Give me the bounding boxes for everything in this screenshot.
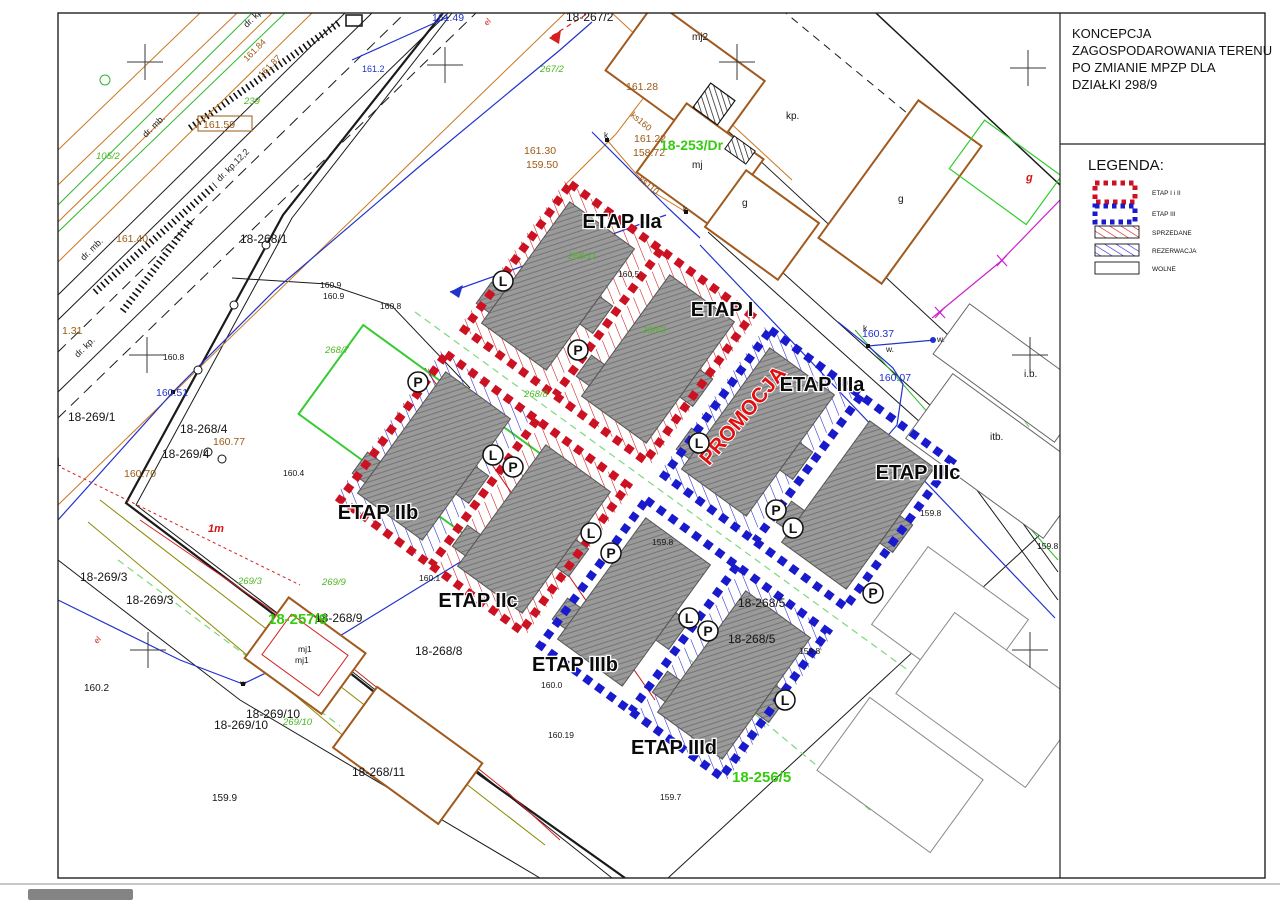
parcel-label: 18-269/10 bbox=[214, 718, 268, 732]
parcel-label: 18-268/5 bbox=[728, 632, 776, 646]
green-parcel-label: 269/3 bbox=[237, 576, 262, 587]
etap-iiia-label: ETAP IIIa bbox=[780, 374, 866, 396]
entrance-label: L bbox=[499, 273, 508, 289]
elevation-label: 160.70 bbox=[124, 468, 156, 480]
elevation-label: 159.8 bbox=[652, 537, 674, 547]
entrance-label: L bbox=[685, 610, 694, 626]
elevation-label: 160.37 bbox=[862, 328, 894, 340]
etap-iiid-label: ETAP IIId bbox=[631, 737, 717, 759]
legend-swatch-sold bbox=[1095, 226, 1139, 238]
parcel-label: 18-269/3 bbox=[80, 570, 128, 584]
building-label: itb. bbox=[990, 432, 1003, 443]
site-plan-drawing: ETAP IIa ETAP I ETAP IIIa ETAP IIIc ETAP… bbox=[0, 0, 1280, 904]
elevation-label: 159.50 bbox=[526, 159, 558, 171]
etap-iib-label: ETAP IIb bbox=[338, 502, 418, 524]
etap-iiib-label: ETAP IIIb bbox=[532, 654, 618, 676]
entrance-label: P bbox=[868, 585, 877, 601]
building-label: g bbox=[1025, 172, 1033, 184]
area-label: kp. bbox=[786, 111, 799, 122]
elevation-label: 161.28 bbox=[626, 81, 658, 93]
elevation-label: 160.9 bbox=[323, 291, 345, 301]
elevation-label: 161.49 bbox=[432, 12, 464, 24]
entrance-label: P bbox=[606, 545, 615, 561]
elevation-label: 160.0 bbox=[541, 680, 563, 690]
elevation-label: 160.8 bbox=[163, 352, 185, 362]
entrance-label: P bbox=[573, 342, 582, 358]
title-line: DZIAŁKI 298/9 bbox=[1072, 77, 1157, 92]
elevation-label: 160.1 bbox=[419, 573, 441, 583]
entrance-label: P bbox=[703, 623, 712, 639]
elevation-label: 160.5 bbox=[618, 269, 640, 279]
green-parcel-label: 18-253/Dr bbox=[660, 137, 724, 153]
elevation-label: 160.07 bbox=[879, 372, 911, 384]
elevation-label: 160.51 bbox=[156, 387, 188, 399]
green-parcel-label: 105/2 bbox=[96, 151, 120, 162]
elevation-label: 161.59 bbox=[203, 119, 235, 131]
entrance-label: L bbox=[489, 447, 498, 463]
elevation-label: 161.40 bbox=[116, 233, 148, 245]
elevation-label: 160.2 bbox=[84, 683, 109, 694]
watermark-bar bbox=[28, 889, 133, 900]
entrance-label: L bbox=[789, 520, 798, 536]
building-label: mj1 bbox=[298, 644, 312, 654]
node-label: w bbox=[239, 678, 247, 688]
building-label: mj2 bbox=[692, 32, 709, 43]
elevation-label: 159.7 bbox=[660, 792, 682, 802]
legend-item-label: WOLNE bbox=[1152, 266, 1177, 273]
green-parcel-label: 268/8 bbox=[523, 389, 548, 400]
elevation-label: 160.19 bbox=[548, 730, 574, 740]
green-parcel-label: 269/9 bbox=[321, 577, 346, 588]
parcel-label: 18-268/5 bbox=[738, 596, 786, 610]
elevation-label: 160.8 bbox=[380, 301, 402, 311]
legend-item-label: ETAP I i II bbox=[1152, 190, 1181, 197]
title-line: PO ZMIANIE MPZP DLA bbox=[1072, 60, 1216, 75]
legend-swatch-free bbox=[1095, 262, 1139, 274]
note-label: 1m bbox=[208, 523, 224, 535]
green-parcel-label: 18-257/9 bbox=[268, 611, 327, 628]
elevation-label: 159.8 bbox=[1037, 541, 1059, 551]
entrance-label: P bbox=[771, 502, 780, 518]
parcel-label: 18-269/3 bbox=[126, 593, 174, 607]
green-parcel-label: 268/7 bbox=[324, 345, 349, 356]
entrance-label: P bbox=[413, 374, 422, 390]
title-line: KONCEPCJA bbox=[1072, 26, 1152, 41]
building-label: i.b. bbox=[1024, 369, 1037, 380]
legend-title: LEGENDA: bbox=[1088, 157, 1164, 174]
green-parcel-label: 267/2 bbox=[539, 64, 564, 75]
node-label: w. bbox=[885, 344, 894, 354]
green-parcel-label: 268/3 bbox=[641, 325, 666, 336]
entrance-label: L bbox=[695, 435, 704, 451]
elevation-label: 1.31 bbox=[62, 325, 83, 337]
elevation-label: 160.77 bbox=[213, 436, 245, 448]
building-label: mj bbox=[692, 160, 703, 171]
green-parcel-label: 269/10 bbox=[282, 717, 313, 728]
elevation-label: 161.30 bbox=[524, 145, 556, 157]
elevation-label: 159.8 bbox=[920, 508, 942, 518]
plan-sheet: ETAP IIa ETAP I ETAP IIIa ETAP IIIc ETAP… bbox=[0, 0, 1280, 904]
green-parcel-label: 239 bbox=[243, 96, 261, 107]
parcel-label: 18-268/8 bbox=[415, 644, 463, 658]
building-label: g bbox=[742, 198, 748, 209]
green-parcel-label: 18-256/5 bbox=[732, 769, 791, 786]
legend-item-label: REZERWACJA bbox=[1152, 248, 1197, 255]
etap-iic-label: ETAP IIc bbox=[438, 590, 517, 612]
parcel-label: 18-268/11 bbox=[352, 765, 405, 779]
elevation-label: 159.8 bbox=[799, 646, 821, 656]
parcel-label: 18-268/4 bbox=[180, 422, 228, 436]
etap-i-label: ETAP I bbox=[691, 299, 754, 321]
node-label: w. bbox=[936, 334, 945, 344]
parcel-label: 18-268/1 bbox=[240, 232, 288, 246]
elevation-label: 161.2 bbox=[362, 64, 385, 74]
green-parcel-label: 268/11 bbox=[567, 251, 596, 262]
etap-iia-label: ETAP IIa bbox=[582, 211, 662, 233]
elevation-label: 160.9 bbox=[320, 280, 342, 290]
etap-iiic-label: ETAP IIIc bbox=[876, 462, 961, 484]
legend-item-label: SPRZEDANE bbox=[1152, 230, 1192, 237]
entrance-label: L bbox=[781, 692, 790, 708]
building-label: mj1 bbox=[295, 655, 309, 665]
elevation-label: 159.9 bbox=[212, 793, 237, 804]
entrance-label: P bbox=[508, 459, 517, 475]
entrance-label: L bbox=[587, 525, 596, 541]
legend-swatch-reserved bbox=[1095, 244, 1139, 256]
parcel-label: 18-269/4 bbox=[162, 447, 210, 461]
elevation-label: 160.4 bbox=[283, 468, 305, 478]
parcel-label: 18-269/1 bbox=[68, 410, 116, 424]
legend-item-label: ETAP III bbox=[1152, 211, 1176, 218]
title-line: ZAGOSPODAROWANIA TERENU bbox=[1072, 43, 1272, 58]
building-label: g bbox=[898, 194, 904, 205]
